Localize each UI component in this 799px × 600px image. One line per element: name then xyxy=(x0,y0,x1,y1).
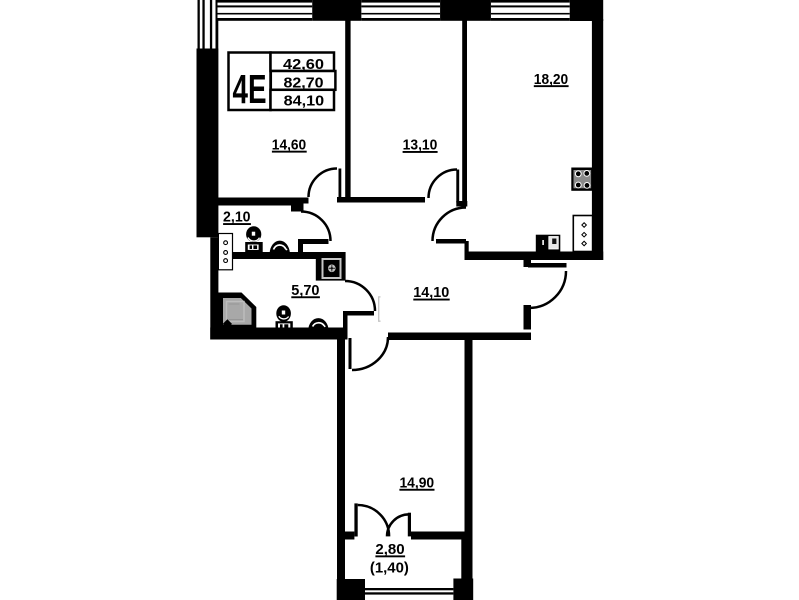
svg-text:82,70: 82,70 xyxy=(284,76,324,92)
svg-text:84,10: 84,10 xyxy=(284,94,325,110)
svg-text:42,60: 42,60 xyxy=(283,57,324,73)
svg-text:4Е: 4Е xyxy=(233,66,267,112)
svg-text:(1,40): (1,40) xyxy=(370,561,409,577)
